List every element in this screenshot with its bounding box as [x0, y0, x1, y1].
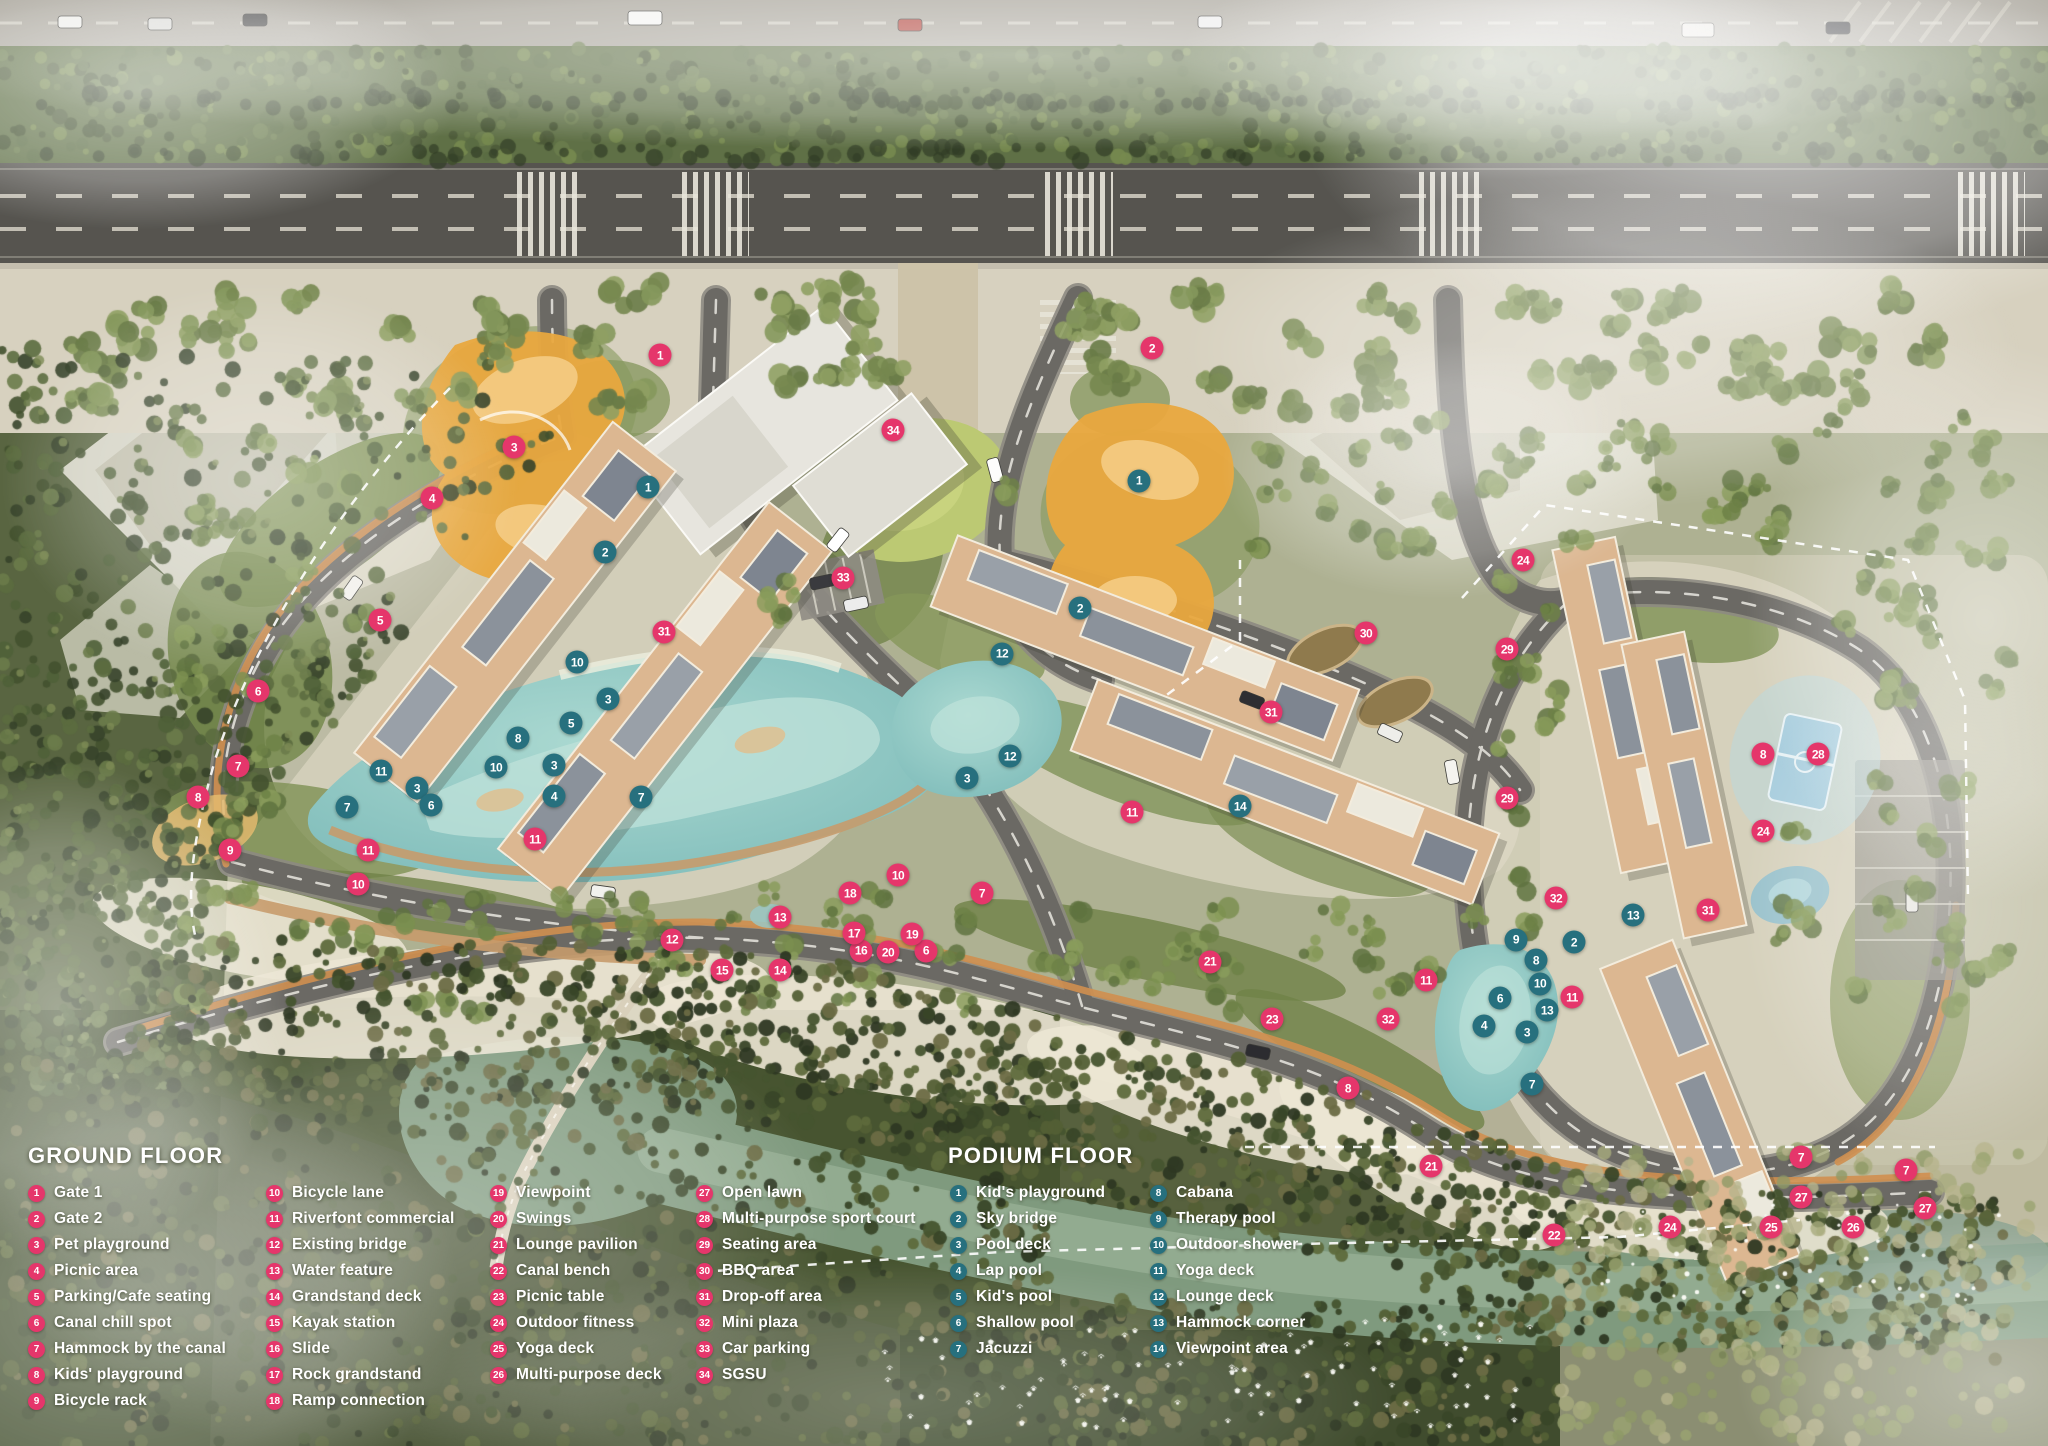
legend-item-label: Cabana: [1176, 1184, 1233, 1202]
legend-item-label: Bicycle rack: [54, 1392, 147, 1410]
legend-item-label: Mini plaza: [722, 1314, 798, 1332]
legend-item-ground-16: 16Slide: [266, 1339, 330, 1359]
legend-item-label: BBQ area: [722, 1262, 794, 1280]
legend-item-label: Outdoor shower: [1176, 1236, 1299, 1254]
legend-item-ground-9: 9Bicycle rack: [28, 1391, 147, 1411]
legend-item-ground-17: 17Rock grandstand: [266, 1365, 422, 1385]
legend-item-label: Existing bridge: [292, 1236, 407, 1254]
legend-item-ground-4: 4Picnic area: [28, 1261, 138, 1281]
legend-item-podium-12: 12Lounge deck: [1150, 1287, 1274, 1307]
ground-legend-marker-icon: 8: [28, 1367, 45, 1384]
ground-legend-marker-icon: 19: [490, 1185, 507, 1202]
legend-item-ground-8: 8Kids' playground: [28, 1365, 183, 1385]
legend-item-label: SGSU: [722, 1366, 767, 1384]
legend-item-podium-9: 9Therapy pool: [1150, 1209, 1276, 1229]
legend-item-label: Yoga deck: [516, 1340, 594, 1358]
podium-legend-marker-icon: 6: [950, 1315, 967, 1332]
podium-legend-marker-icon: 11: [1150, 1263, 1167, 1280]
legend-item-ground-24: 24Outdoor fitness: [490, 1313, 634, 1333]
ground-legend-marker-icon: 29: [696, 1237, 713, 1254]
legend-item-label: Bicycle lane: [292, 1184, 384, 1202]
masterplan-map: 1234566777788891010111111111112131415161…: [0, 0, 2048, 1446]
ground-legend-marker-icon: 16: [266, 1341, 283, 1358]
legend-item-label: Slide: [292, 1340, 330, 1358]
legend-item-label: Shallow pool: [976, 1314, 1074, 1332]
legend-item-label: Pool deck: [976, 1236, 1051, 1254]
legend-item-label: Jacuzzi: [976, 1340, 1033, 1358]
legend-item-ground-31: 31Drop-off area: [696, 1287, 822, 1307]
legend-item-ground-28: 28Multi-purpose sport court: [696, 1209, 916, 1229]
legend-item-ground-33: 33Car parking: [696, 1339, 810, 1359]
legend-item-ground-11: 11Riverfont commercial: [266, 1209, 455, 1229]
legend-item-ground-10: 10Bicycle lane: [266, 1183, 384, 1203]
legend-item-label: Open lawn: [722, 1184, 802, 1202]
ground-legend-marker-icon: 2: [28, 1211, 45, 1228]
podium-legend-marker-icon: 3: [950, 1237, 967, 1254]
legend-item-label: Viewpoint: [516, 1184, 591, 1202]
ground-legend-marker-icon: 33: [696, 1341, 713, 1358]
legend-item-ground-26: 26Multi-purpose deck: [490, 1365, 662, 1385]
legend-item-label: Kid's playground: [976, 1184, 1105, 1202]
ground-legend-marker-icon: 18: [266, 1393, 283, 1410]
ground-legend-marker-icon: 26: [490, 1367, 507, 1384]
podium-legend-marker-icon: 2: [950, 1211, 967, 1228]
ground-legend-marker-icon: 32: [696, 1315, 713, 1332]
ground-legend-marker-icon: 11: [266, 1211, 283, 1228]
legend-item-ground-27: 27Open lawn: [696, 1183, 802, 1203]
legend-item-label: Gate 1: [54, 1184, 103, 1202]
ground-legend-marker-icon: 31: [696, 1289, 713, 1306]
legend-item-label: Therapy pool: [1176, 1210, 1276, 1228]
legend-item-ground-12: 12Existing bridge: [266, 1235, 407, 1255]
legend-item-ground-32: 32Mini plaza: [696, 1313, 798, 1333]
legend-item-ground-30: 30BBQ area: [696, 1261, 794, 1281]
legend-item-label: Sky bridge: [976, 1210, 1057, 1228]
legend-item-podium-13: 13Hammock corner: [1150, 1313, 1305, 1333]
legend-item-ground-7: 7Hammock by the canal: [28, 1339, 226, 1359]
legend-item-ground-29: 29Seating area: [696, 1235, 817, 1255]
legend-item-label: Multi-purpose sport court: [722, 1210, 916, 1228]
legend-item-podium-2: 2Sky bridge: [950, 1209, 1057, 1229]
legend-item-label: Swings: [516, 1210, 571, 1228]
ground-legend-marker-icon: 20: [490, 1211, 507, 1228]
ground-legend-marker-icon: 1: [28, 1185, 45, 1202]
legend-item-ground-3: 3Pet playground: [28, 1235, 170, 1255]
podium-legend-marker-icon: 8: [1150, 1185, 1167, 1202]
ground-legend-marker-icon: 9: [28, 1393, 45, 1410]
podium-legend-marker-icon: 4: [950, 1263, 967, 1280]
legend-item-label: Grandstand deck: [292, 1288, 422, 1306]
legend-item-podium-7: 7Jacuzzi: [950, 1339, 1033, 1359]
legend-item-label: Car parking: [722, 1340, 810, 1358]
legend-item-label: Pet playground: [54, 1236, 170, 1254]
podium-legend-marker-icon: 9: [1150, 1211, 1167, 1228]
legend-item-label: Viewpoint area: [1176, 1340, 1288, 1358]
legend-item-podium-10: 10Outdoor shower: [1150, 1235, 1299, 1255]
legend-item-label: Seating area: [722, 1236, 817, 1254]
ground-legend-marker-icon: 22: [490, 1263, 507, 1280]
legend-item-ground-25: 25Yoga deck: [490, 1339, 594, 1359]
legend-item-ground-22: 22Canal bench: [490, 1261, 610, 1281]
legend-item-ground-15: 15Kayak station: [266, 1313, 395, 1333]
ground-legend-marker-icon: 28: [696, 1211, 713, 1228]
ground-legend-marker-icon: 21: [490, 1237, 507, 1254]
legend-item-label: Lounge pavilion: [516, 1236, 638, 1254]
legend-item-podium-5: 5Kid's pool: [950, 1287, 1052, 1307]
legend-item-podium-11: 11Yoga deck: [1150, 1261, 1254, 1281]
ground-legend-marker-icon: 3: [28, 1237, 45, 1254]
legend-item-ground-20: 20Swings: [490, 1209, 571, 1229]
legend-item-podium-14: 14Viewpoint area: [1150, 1339, 1288, 1359]
podium-legend-marker-icon: 12: [1150, 1289, 1167, 1306]
legend-item-ground-34: 34SGSU: [696, 1365, 767, 1385]
ground-legend-marker-icon: 23: [490, 1289, 507, 1306]
legend-item-ground-1: 1Gate 1: [28, 1183, 103, 1203]
legend-item-podium-8: 8Cabana: [1150, 1183, 1233, 1203]
legend-item-podium-4: 4Lap pool: [950, 1261, 1042, 1281]
legend-item-ground-21: 21Lounge pavilion: [490, 1235, 638, 1255]
legend-item-podium-6: 6Shallow pool: [950, 1313, 1074, 1333]
ground-legend-marker-icon: 27: [696, 1185, 713, 1202]
ground-legend-marker-icon: 24: [490, 1315, 507, 1332]
podium-legend-marker-icon: 7: [950, 1341, 967, 1358]
legend-item-ground-18: 18Ramp connection: [266, 1391, 425, 1411]
ground-legend-marker-icon: 13: [266, 1263, 283, 1280]
legend-item-label: Canal bench: [516, 1262, 610, 1280]
legend-item-ground-5: 5Parking/Cafe seating: [28, 1287, 211, 1307]
legend-item-label: Ramp connection: [292, 1392, 425, 1410]
legend-item-label: Kid's pool: [976, 1288, 1052, 1306]
ground-legend-marker-icon: 10: [266, 1185, 283, 1202]
ground-legend-marker-icon: 15: [266, 1315, 283, 1332]
legend-item-ground-23: 23Picnic table: [490, 1287, 605, 1307]
legend: GROUND FLOOR PODIUM FLOOR 1Gate 12Gate 2…: [0, 0, 2048, 1446]
legend-item-label: Lounge deck: [1176, 1288, 1274, 1306]
legend-item-ground-2: 2Gate 2: [28, 1209, 103, 1229]
legend-item-label: Canal chill spot: [54, 1314, 172, 1332]
legend-item-label: Yoga deck: [1176, 1262, 1254, 1280]
ground-legend-marker-icon: 25: [490, 1341, 507, 1358]
legend-item-label: Rock grandstand: [292, 1366, 422, 1384]
legend-title-podium: PODIUM FLOOR: [948, 1143, 1134, 1169]
ground-legend-marker-icon: 17: [266, 1367, 283, 1384]
legend-item-ground-6: 6Canal chill spot: [28, 1313, 172, 1333]
legend-item-label: Outdoor fitness: [516, 1314, 634, 1332]
legend-item-label: Water feature: [292, 1262, 393, 1280]
legend-item-ground-14: 14Grandstand deck: [266, 1287, 422, 1307]
legend-item-label: Riverfont commercial: [292, 1210, 455, 1228]
ground-legend-marker-icon: 4: [28, 1263, 45, 1280]
legend-item-label: Lap pool: [976, 1262, 1042, 1280]
ground-legend-marker-icon: 5: [28, 1289, 45, 1306]
podium-legend-marker-icon: 10: [1150, 1237, 1167, 1254]
ground-legend-marker-icon: 14: [266, 1289, 283, 1306]
legend-item-ground-13: 13Water feature: [266, 1261, 393, 1281]
ground-legend-marker-icon: 6: [28, 1315, 45, 1332]
legend-item-label: Kids' playground: [54, 1366, 183, 1384]
legend-item-label: Picnic area: [54, 1262, 138, 1280]
legend-item-label: Picnic table: [516, 1288, 605, 1306]
legend-item-label: Drop-off area: [722, 1288, 822, 1306]
podium-legend-marker-icon: 14: [1150, 1341, 1167, 1358]
legend-item-podium-1: 1Kid's playground: [950, 1183, 1105, 1203]
ground-legend-marker-icon: 30: [696, 1263, 713, 1280]
legend-item-ground-19: 19Viewpoint: [490, 1183, 591, 1203]
podium-legend-marker-icon: 5: [950, 1289, 967, 1306]
ground-legend-marker-icon: 7: [28, 1341, 45, 1358]
legend-item-label: Kayak station: [292, 1314, 395, 1332]
legend-title-ground: GROUND FLOOR: [28, 1143, 223, 1169]
podium-legend-marker-icon: 1: [950, 1185, 967, 1202]
legend-item-label: Hammock by the canal: [54, 1340, 226, 1358]
ground-legend-marker-icon: 12: [266, 1237, 283, 1254]
legend-item-label: Gate 2: [54, 1210, 103, 1228]
legend-item-podium-3: 3Pool deck: [950, 1235, 1051, 1255]
ground-legend-marker-icon: 34: [696, 1367, 713, 1384]
legend-item-label: Multi-purpose deck: [516, 1366, 662, 1384]
podium-legend-marker-icon: 13: [1150, 1315, 1167, 1332]
legend-item-label: Hammock corner: [1176, 1314, 1305, 1332]
legend-item-label: Parking/Cafe seating: [54, 1288, 211, 1306]
